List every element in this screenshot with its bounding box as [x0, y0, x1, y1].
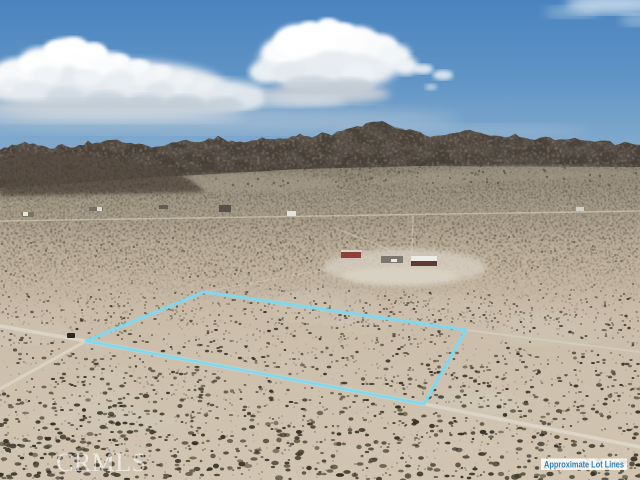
svg-text:Approximate Lot Lines: Approximate Lot Lines	[544, 460, 624, 470]
svg-text:CRMLS: CRMLS	[56, 448, 147, 477]
